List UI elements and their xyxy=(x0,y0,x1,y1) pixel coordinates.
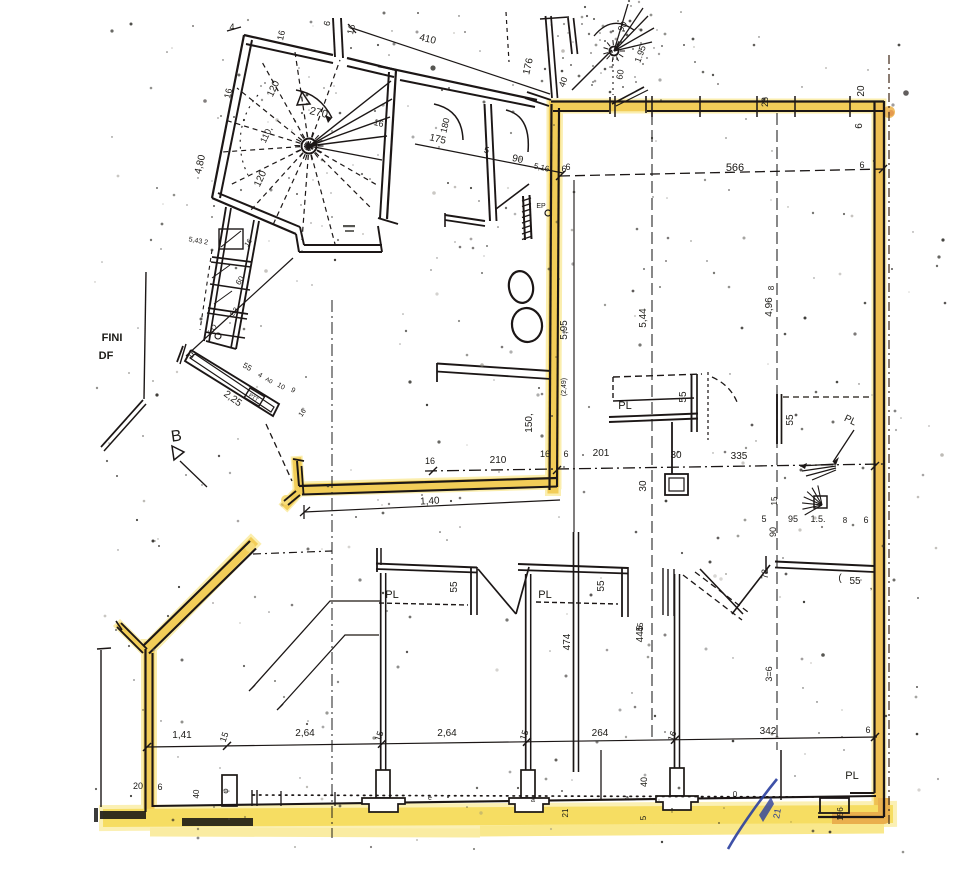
svg-text:6: 6 xyxy=(865,725,870,735)
svg-text:6: 6 xyxy=(563,449,568,459)
svg-text:6: 6 xyxy=(565,162,570,172)
svg-text:55: 55 xyxy=(678,391,689,403)
svg-text:20: 20 xyxy=(856,85,867,97)
svg-text:PL: PL xyxy=(845,770,858,782)
svg-text:16: 16 xyxy=(540,449,550,459)
svg-text:474: 474 xyxy=(562,633,573,650)
svg-text:6: 6 xyxy=(863,515,868,525)
svg-text:5: 5 xyxy=(761,514,766,524)
svg-text:5,44: 5,44 xyxy=(638,308,649,328)
svg-text:201: 201 xyxy=(593,448,610,459)
svg-text:335: 335 xyxy=(731,451,748,462)
svg-text:60: 60 xyxy=(614,69,626,81)
svg-text:21: 21 xyxy=(771,808,783,820)
svg-text:95: 95 xyxy=(788,514,798,524)
svg-text:72: 72 xyxy=(760,569,770,579)
svg-text:1,40: 1,40 xyxy=(420,495,440,507)
svg-text:4,96: 4,96 xyxy=(764,297,775,317)
svg-text:90: 90 xyxy=(768,527,778,537)
svg-text:4: 4 xyxy=(229,22,234,32)
svg-text:PL: PL xyxy=(538,589,551,601)
svg-text:40: 40 xyxy=(639,777,649,787)
svg-text:15: 15 xyxy=(770,496,779,505)
svg-text:6: 6 xyxy=(157,782,162,792)
svg-text:5: 5 xyxy=(639,815,648,820)
svg-text:a: a xyxy=(531,797,535,804)
svg-text:210: 210 xyxy=(490,455,507,466)
svg-text:a: a xyxy=(625,795,629,802)
svg-text:e: e xyxy=(428,795,432,802)
svg-text:45: 45 xyxy=(636,622,645,631)
svg-text:55: 55 xyxy=(785,414,796,426)
svg-text:342: 342 xyxy=(760,726,777,737)
svg-text:1.5.: 1.5. xyxy=(810,514,825,524)
svg-text:16: 16 xyxy=(425,456,435,466)
svg-text:2,64: 2,64 xyxy=(295,728,315,739)
svg-text:(2,49): (2,49) xyxy=(561,378,568,396)
svg-text:150,: 150, xyxy=(524,413,535,432)
svg-text:FINI: FINI xyxy=(102,332,123,344)
svg-text:,: , xyxy=(870,581,873,592)
svg-text:φ: φ xyxy=(221,788,230,793)
svg-text:8: 8 xyxy=(767,285,776,290)
svg-text:20: 20 xyxy=(133,781,143,791)
svg-text:3=6: 3=6 xyxy=(764,666,774,681)
svg-text:DF: DF xyxy=(99,350,114,362)
svg-text:EP: EP xyxy=(536,203,546,210)
svg-text:55: 55 xyxy=(596,580,607,592)
svg-text:156: 156 xyxy=(836,807,845,821)
svg-text:55: 55 xyxy=(849,576,861,587)
svg-text:55: 55 xyxy=(449,581,460,593)
svg-text:8: 8 xyxy=(843,516,848,525)
svg-text:30: 30 xyxy=(638,480,649,492)
svg-text:566: 566 xyxy=(726,162,744,174)
svg-text:6: 6 xyxy=(854,123,865,129)
svg-text:0: 0 xyxy=(733,790,738,799)
svg-text:264: 264 xyxy=(592,728,609,739)
svg-text:2,64: 2,64 xyxy=(437,728,457,739)
svg-text:21: 21 xyxy=(561,808,570,817)
svg-text:PL: PL xyxy=(618,400,631,412)
svg-text:1,41: 1,41 xyxy=(172,730,192,741)
svg-text:PL: PL xyxy=(385,589,398,601)
svg-text:5,95: 5,95 xyxy=(559,320,570,340)
svg-text:6: 6 xyxy=(859,160,864,170)
svg-text:30: 30 xyxy=(670,450,682,461)
svg-text:40: 40 xyxy=(192,789,201,798)
